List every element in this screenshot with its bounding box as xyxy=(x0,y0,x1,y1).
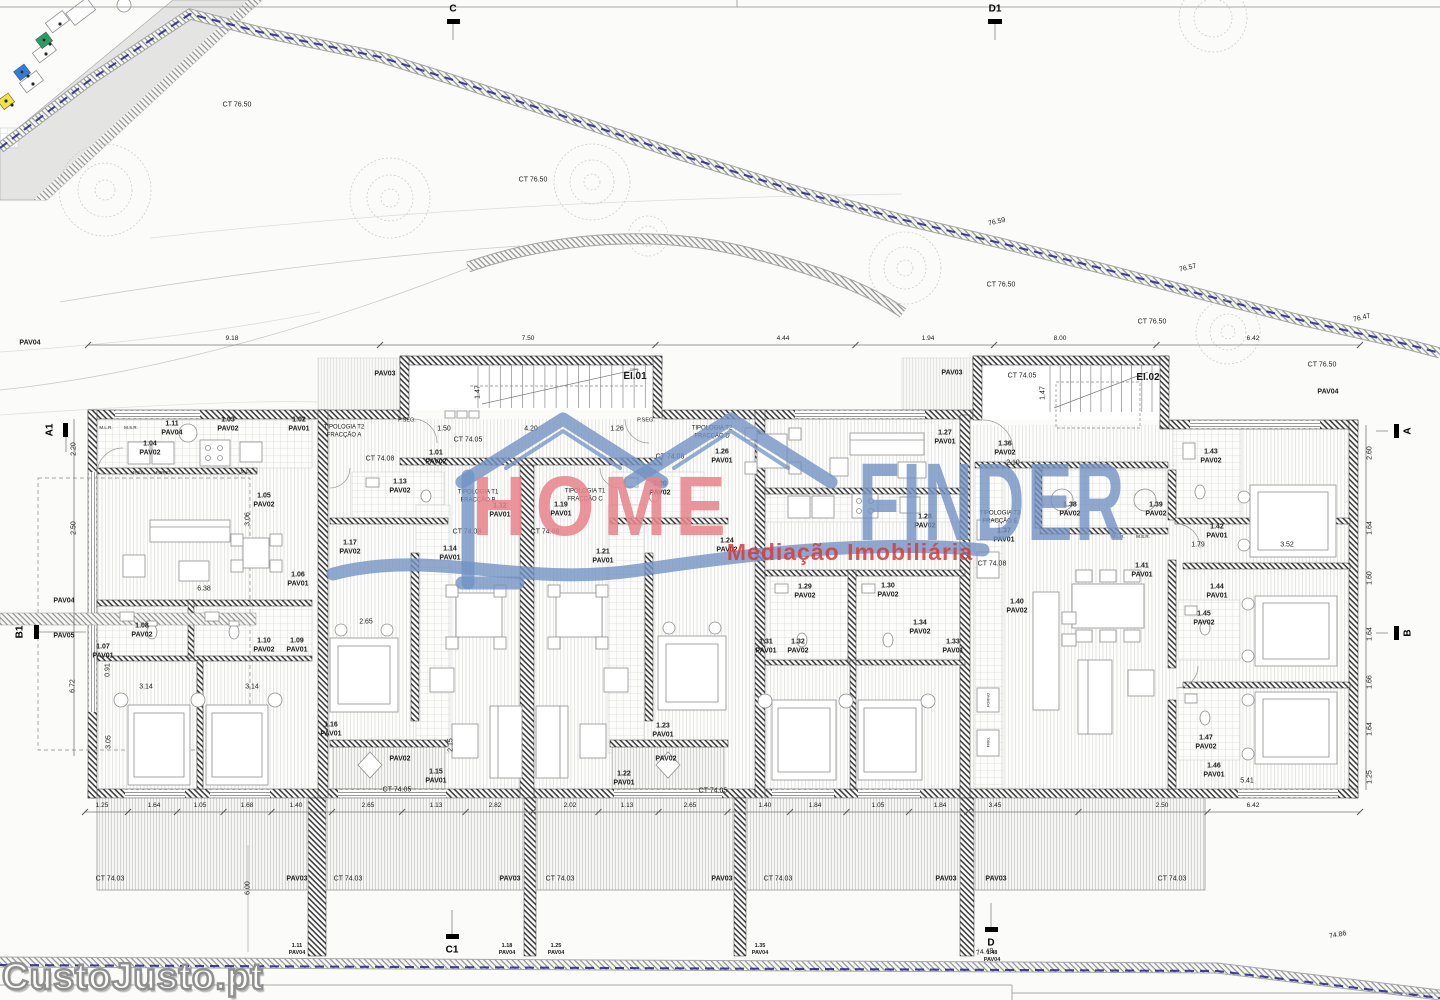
floorplan-canvas: CT 76.50CT 76.50CT 76.50CT 76.50CT 76.50… xyxy=(0,0,1440,1000)
custojusto-watermark: CustoJusto.pt xyxy=(2,956,264,998)
floor-plan-drawing xyxy=(0,0,1440,1000)
